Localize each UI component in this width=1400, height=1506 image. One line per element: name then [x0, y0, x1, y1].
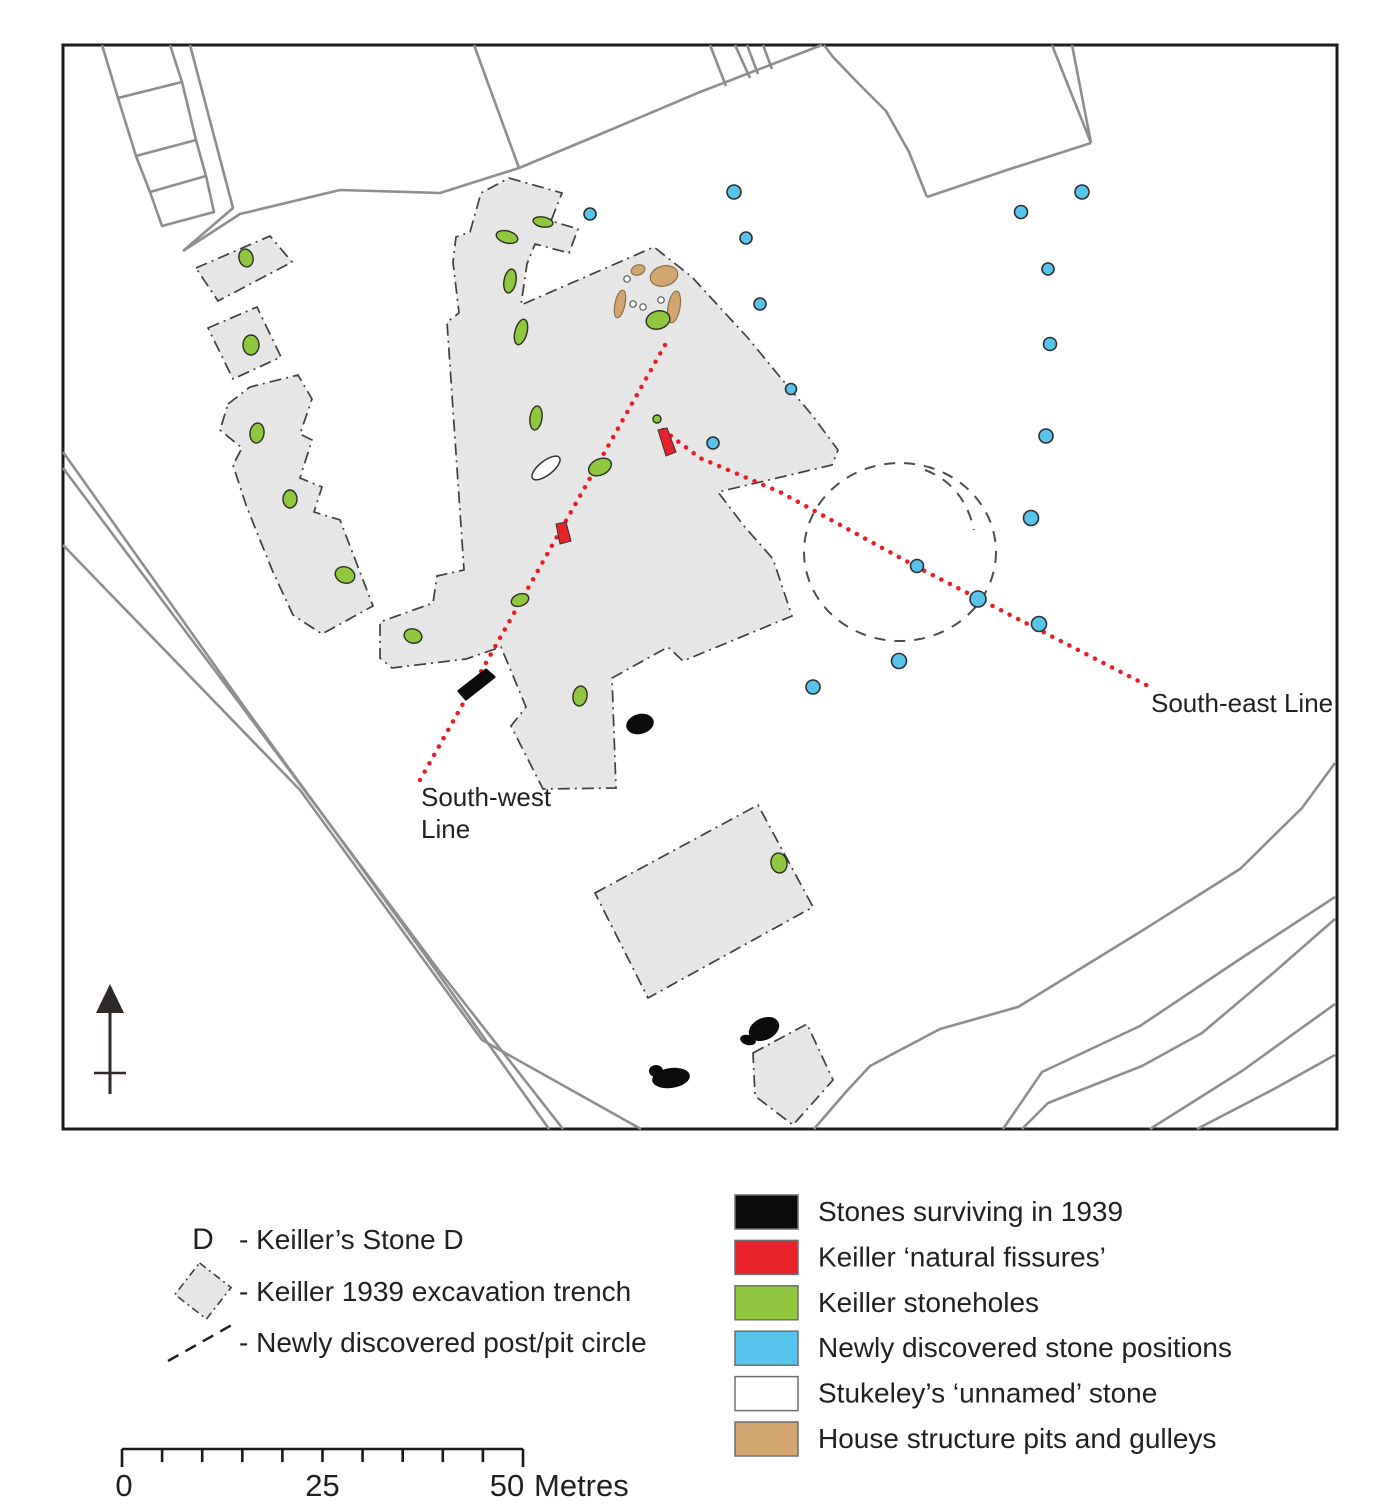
- new-stone-position: [740, 232, 752, 244]
- legend-right-label: House structure pits and gulleys: [818, 1423, 1216, 1454]
- legend-right-label: Newly discovered stone positions: [818, 1332, 1232, 1363]
- legend-color-swatch: [735, 1422, 798, 1456]
- new-stone-position: [970, 591, 986, 607]
- south-west-line-label-2: Line: [421, 814, 470, 844]
- scale-bar: 02550Metres: [115, 1449, 628, 1503]
- legend-left: D- Keiller’s Stone D- Keiller 1939 excav…: [168, 1223, 647, 1361]
- keiller-stonehole: [283, 490, 297, 508]
- new-stone-position: [1044, 338, 1057, 351]
- surviving-stone-1939: [649, 1065, 663, 1077]
- new-stone-position: [1032, 617, 1047, 632]
- house-pit-void: [658, 297, 664, 303]
- house-pit-void: [640, 304, 646, 310]
- site-plan-map: South-west Line South-east Line 02550Met…: [0, 0, 1400, 1506]
- new-stone-position: [754, 298, 766, 310]
- new-stone-position: [786, 384, 797, 395]
- new-stone-position: [806, 680, 820, 694]
- scale-label-unit: Metres: [534, 1468, 629, 1503]
- new-stone-position: [727, 185, 741, 199]
- south-east-line-label: South-east Line: [1151, 688, 1333, 718]
- south-west-line-label: South-west: [421, 782, 552, 812]
- archaeological-site-plan: South-west Line South-east Line 02550Met…: [0, 0, 1400, 1506]
- new-stone-position: [911, 560, 924, 573]
- new-stone-position: [1039, 429, 1053, 443]
- legend-color-swatch: [735, 1286, 798, 1320]
- scale-label-end: 50: [490, 1468, 524, 1503]
- legend-color-swatch: [735, 1195, 798, 1229]
- legend-left-label: - Keiller 1939 excavation trench: [239, 1276, 631, 1307]
- new-stone-position: [1024, 511, 1039, 526]
- new-stone-position: [892, 654, 907, 669]
- legend-right-label: Keiller ‘natural fissures’: [818, 1241, 1106, 1272]
- new-stone-position: [707, 437, 719, 449]
- house-pit-void: [630, 301, 636, 307]
- legend-left-label: - Newly discovered post/pit circle: [239, 1327, 647, 1358]
- new-stone-position: [584, 208, 596, 220]
- legend-color-swatch: [735, 1240, 798, 1274]
- keiller-stonehole: [243, 335, 259, 355]
- new-stone-position: [1075, 185, 1089, 199]
- legend-right-label: Keiller stoneholes: [818, 1287, 1039, 1318]
- house-pit-void: [624, 276, 630, 282]
- scale-label-mid: 25: [305, 1468, 339, 1503]
- new-stone-position: [1015, 206, 1028, 219]
- legend-symbol-trench: [175, 1263, 231, 1319]
- keiller-stonehole: [653, 415, 661, 423]
- legend-right-label: Stones surviving in 1939: [818, 1196, 1123, 1227]
- legend-color-swatch: [735, 1331, 798, 1365]
- legend-symbol-dashed-circle: [168, 1322, 237, 1361]
- scale-label-start: 0: [115, 1468, 132, 1503]
- new-stone-position: [1042, 263, 1054, 275]
- legend-right: Stones surviving in 1939Keiller ‘natural…: [735, 1195, 1232, 1456]
- legend-left-label: - Keiller’s Stone D: [239, 1224, 464, 1255]
- legend-right-label: Stukeley’s ‘unnamed’ stone: [818, 1378, 1157, 1409]
- legend-color-swatch: [735, 1377, 798, 1411]
- legend-symbol-stone-d: D: [192, 1223, 214, 1256]
